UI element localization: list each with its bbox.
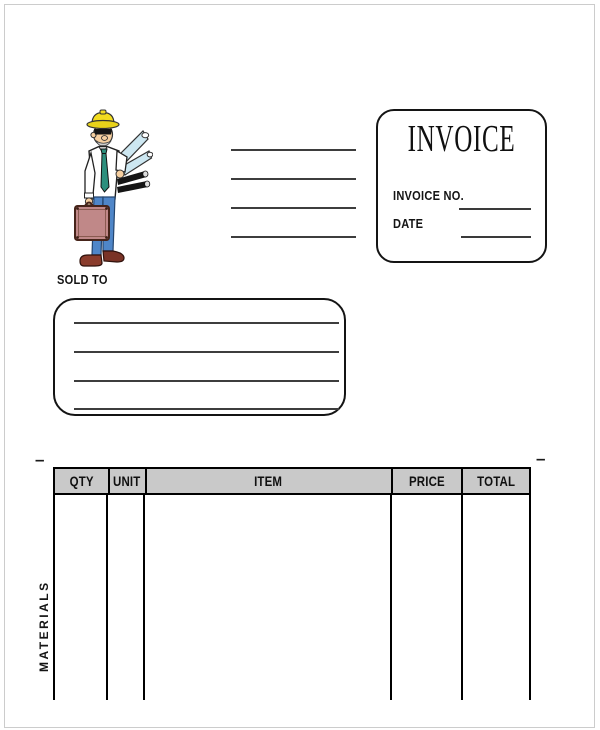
total-header-label: TOTAL <box>477 473 515 489</box>
invoice-title: INVOICE <box>406 117 516 161</box>
invoice-template-page: INVOICE INVOICE NO. DATE SOLD TO – – QTY… <box>0 0 600 730</box>
invoice-no-label: INVOICE NO. <box>393 188 464 203</box>
qty-header-label: QTY <box>69 473 93 489</box>
company-info-line <box>231 236 356 238</box>
price-column-header: PRICE <box>391 469 462 493</box>
table-column-line <box>461 495 463 700</box>
worker-right-hand <box>116 170 124 178</box>
company-info-line <box>231 149 356 151</box>
sold-to-label: SOLD TO <box>57 272 108 287</box>
invoice-no-line <box>459 208 531 210</box>
company-info-line <box>231 207 356 209</box>
table-column-line <box>390 495 392 700</box>
item-column-header: ITEM <box>145 469 391 493</box>
qty-column-header: QTY <box>55 469 108 493</box>
materials-section-label: MATERIALS <box>37 580 51 672</box>
item-header-label: ITEM <box>255 473 283 489</box>
table-column-line <box>53 495 55 700</box>
invoice-header-box: INVOICE INVOICE NO. DATE <box>376 109 547 263</box>
sold-to-line <box>74 380 339 382</box>
date-label: DATE <box>393 216 423 231</box>
table-column-line <box>143 495 145 700</box>
unit-column-header: UNIT <box>108 469 145 493</box>
sold-to-line <box>74 408 339 410</box>
table-column-line <box>529 495 531 700</box>
price-header-label: PRICE <box>409 473 445 489</box>
date-line <box>461 236 531 238</box>
company-info-line <box>231 178 356 180</box>
sold-to-line <box>74 351 339 353</box>
worker-hard-hat-icon <box>87 110 119 129</box>
worker-briefcase <box>75 203 109 241</box>
sold-to-address-box <box>53 298 346 416</box>
crop-dash-left: – <box>35 451 44 468</box>
table-column-line <box>106 495 108 700</box>
sold-to-line <box>74 322 339 324</box>
crop-dash-right: – <box>536 450 545 467</box>
items-table-header-row: QTY UNIT ITEM PRICE TOTAL <box>53 467 531 495</box>
worker-shoes <box>80 251 124 266</box>
total-column-header: TOTAL <box>461 469 529 493</box>
unit-header-label: UNIT <box>113 473 140 489</box>
construction-worker-illustration <box>73 109 153 272</box>
